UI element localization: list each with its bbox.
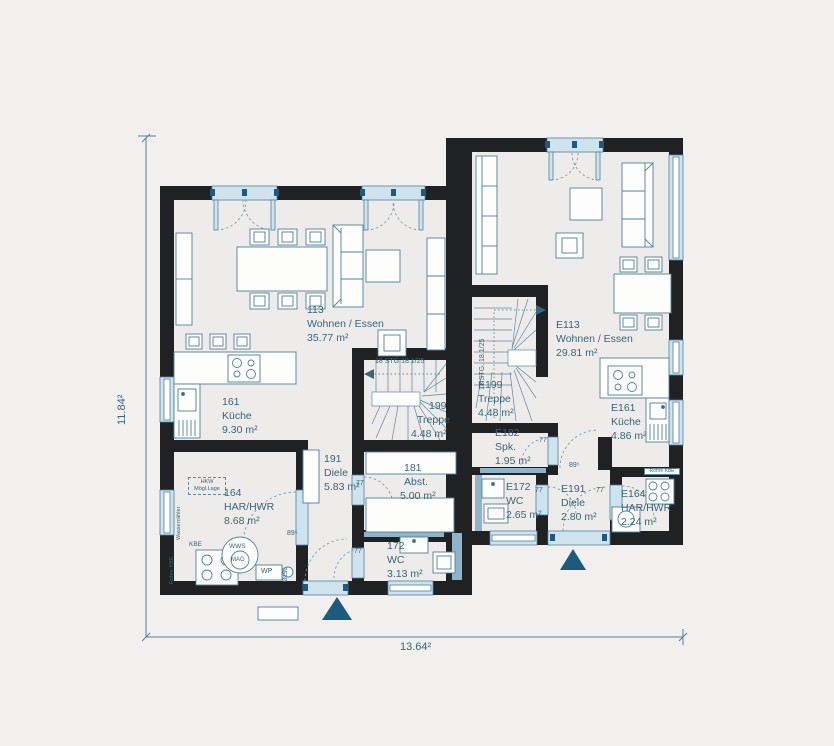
stair-note-left: 18 STG 18.1/25: [375, 358, 424, 366]
room-label-181: 181 Abst. 5.00 m²: [404, 461, 436, 503]
mag-label: MAG: [231, 556, 245, 564]
wasserzaehler-note: Wasserzähler: [176, 507, 182, 540]
sofa-e113-right: [622, 163, 653, 247]
door-width-77-abst: 77: [356, 480, 364, 488]
sofa-e113-left: [476, 156, 497, 274]
room-label-161: 161 Küche 9.30 m²: [222, 395, 258, 437]
door-width-89-left: 89⁵: [287, 530, 298, 538]
rohre-kbe-note-right: Rohre KBE: [644, 468, 680, 475]
door-width-77-e182: 77: [539, 437, 547, 445]
door-width-77-e164: 77: [596, 487, 604, 495]
floorplan-drawing: [0, 0, 834, 746]
wp-label: WP: [261, 568, 272, 576]
wc-toilet-e172: [484, 504, 508, 523]
room-label-e182: E182 Spk. 1.95 m²: [495, 426, 531, 468]
rohre-kbe-note-left: Rohre KBE: [169, 556, 175, 584]
room-label-e113: E113 Wohnen / Essen 29.81 m²: [556, 318, 633, 360]
d150-label: Ø150: [282, 567, 290, 582]
kbe-label: KBE: [189, 541, 202, 549]
coffee-table-e113: [570, 188, 602, 220]
entrance-triangle-right: [560, 549, 586, 570]
sideboard-right: [427, 238, 445, 350]
dimension-height: 11.84²: [116, 395, 128, 425]
room-label-199: 199 Treppe 4.48 m²: [429, 399, 450, 441]
room-label-e164: E164 HAR/HWR 2.24 m²: [621, 487, 671, 529]
entrance-mat: [258, 607, 298, 620]
wc-sink-e172: [482, 479, 504, 498]
room-label-164: 164 HAR/HWR 8.68 m²: [224, 486, 274, 528]
dimension-width: 13.64²: [400, 641, 431, 653]
dining-table-left: [237, 229, 327, 309]
floorplan-page: 11.84² 13.64² 113 Wohnen / Essen 35.77 m…: [0, 0, 834, 746]
hkw-note: HKW Mögl.Lage: [188, 477, 226, 495]
entrance-triangle-left: [322, 597, 352, 620]
room-label-191: 191 Diele 5.83 m²: [324, 452, 360, 494]
coffee-table-left: [366, 250, 400, 282]
wardrobe-diele: [303, 450, 319, 503]
room-label-e161: E161 Küche 4.86 m²: [611, 401, 647, 443]
room-label-e191: E191 Diele 2.80 m²: [561, 482, 597, 524]
door-width-77-wc: 77: [354, 548, 362, 556]
armchair-e113: [556, 233, 583, 258]
stair-note-right: 18 STG. 18.1/25: [479, 339, 487, 390]
cabinet-left: [176, 233, 192, 325]
wws-label: WWS: [229, 543, 246, 551]
bar-stools: [186, 334, 250, 349]
sofa-left-unit: [333, 225, 363, 307]
room-label-113: 113 Wohnen / Essen 35.77 m²: [307, 303, 384, 345]
room-label-172: 172 WC 3.13 m²: [387, 539, 423, 581]
wc-toilet-left: [433, 552, 455, 573]
door-width-89-right: 89⁵: [569, 462, 580, 470]
door-width-77-e172: 77: [535, 487, 543, 495]
